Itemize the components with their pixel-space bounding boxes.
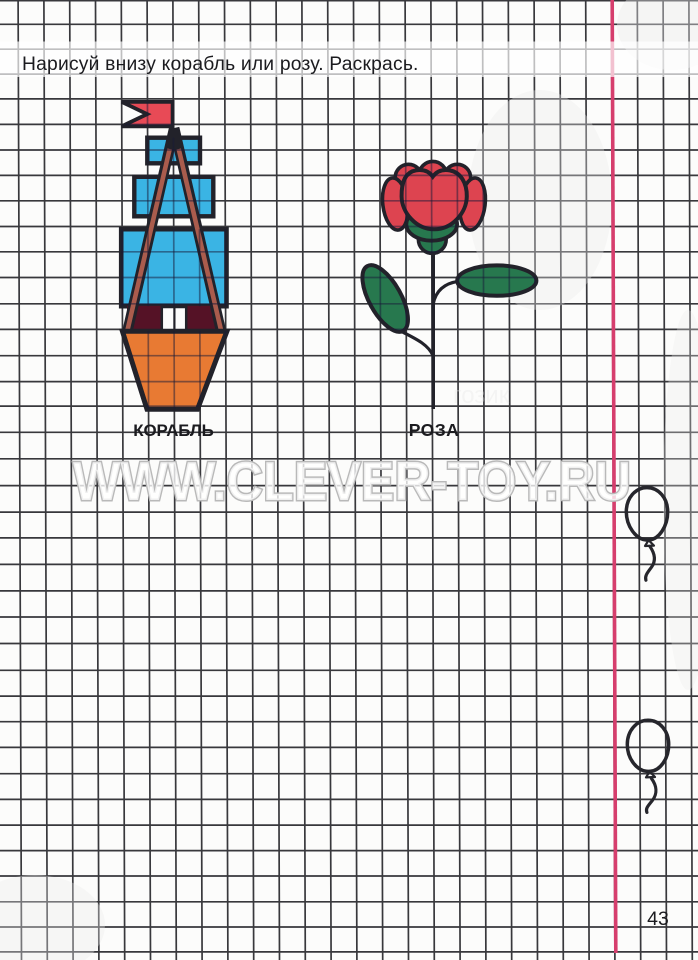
- svg-text:Нарисуй внизу корабль или розу: Нарисуй внизу корабль или розу. Раскрась…: [22, 54, 419, 75]
- svg-text:КОРАБЛЬ: КОРАБЛЬ: [133, 421, 213, 440]
- svg-text:РОЗА: РОЗА: [409, 420, 460, 440]
- svg-text:43: 43: [647, 908, 669, 930]
- svg-text:гозик: гозик: [453, 382, 510, 409]
- svg-text:WWW.CLEVER-TOY.RU: WWW.CLEVER-TOY.RU: [73, 450, 631, 512]
